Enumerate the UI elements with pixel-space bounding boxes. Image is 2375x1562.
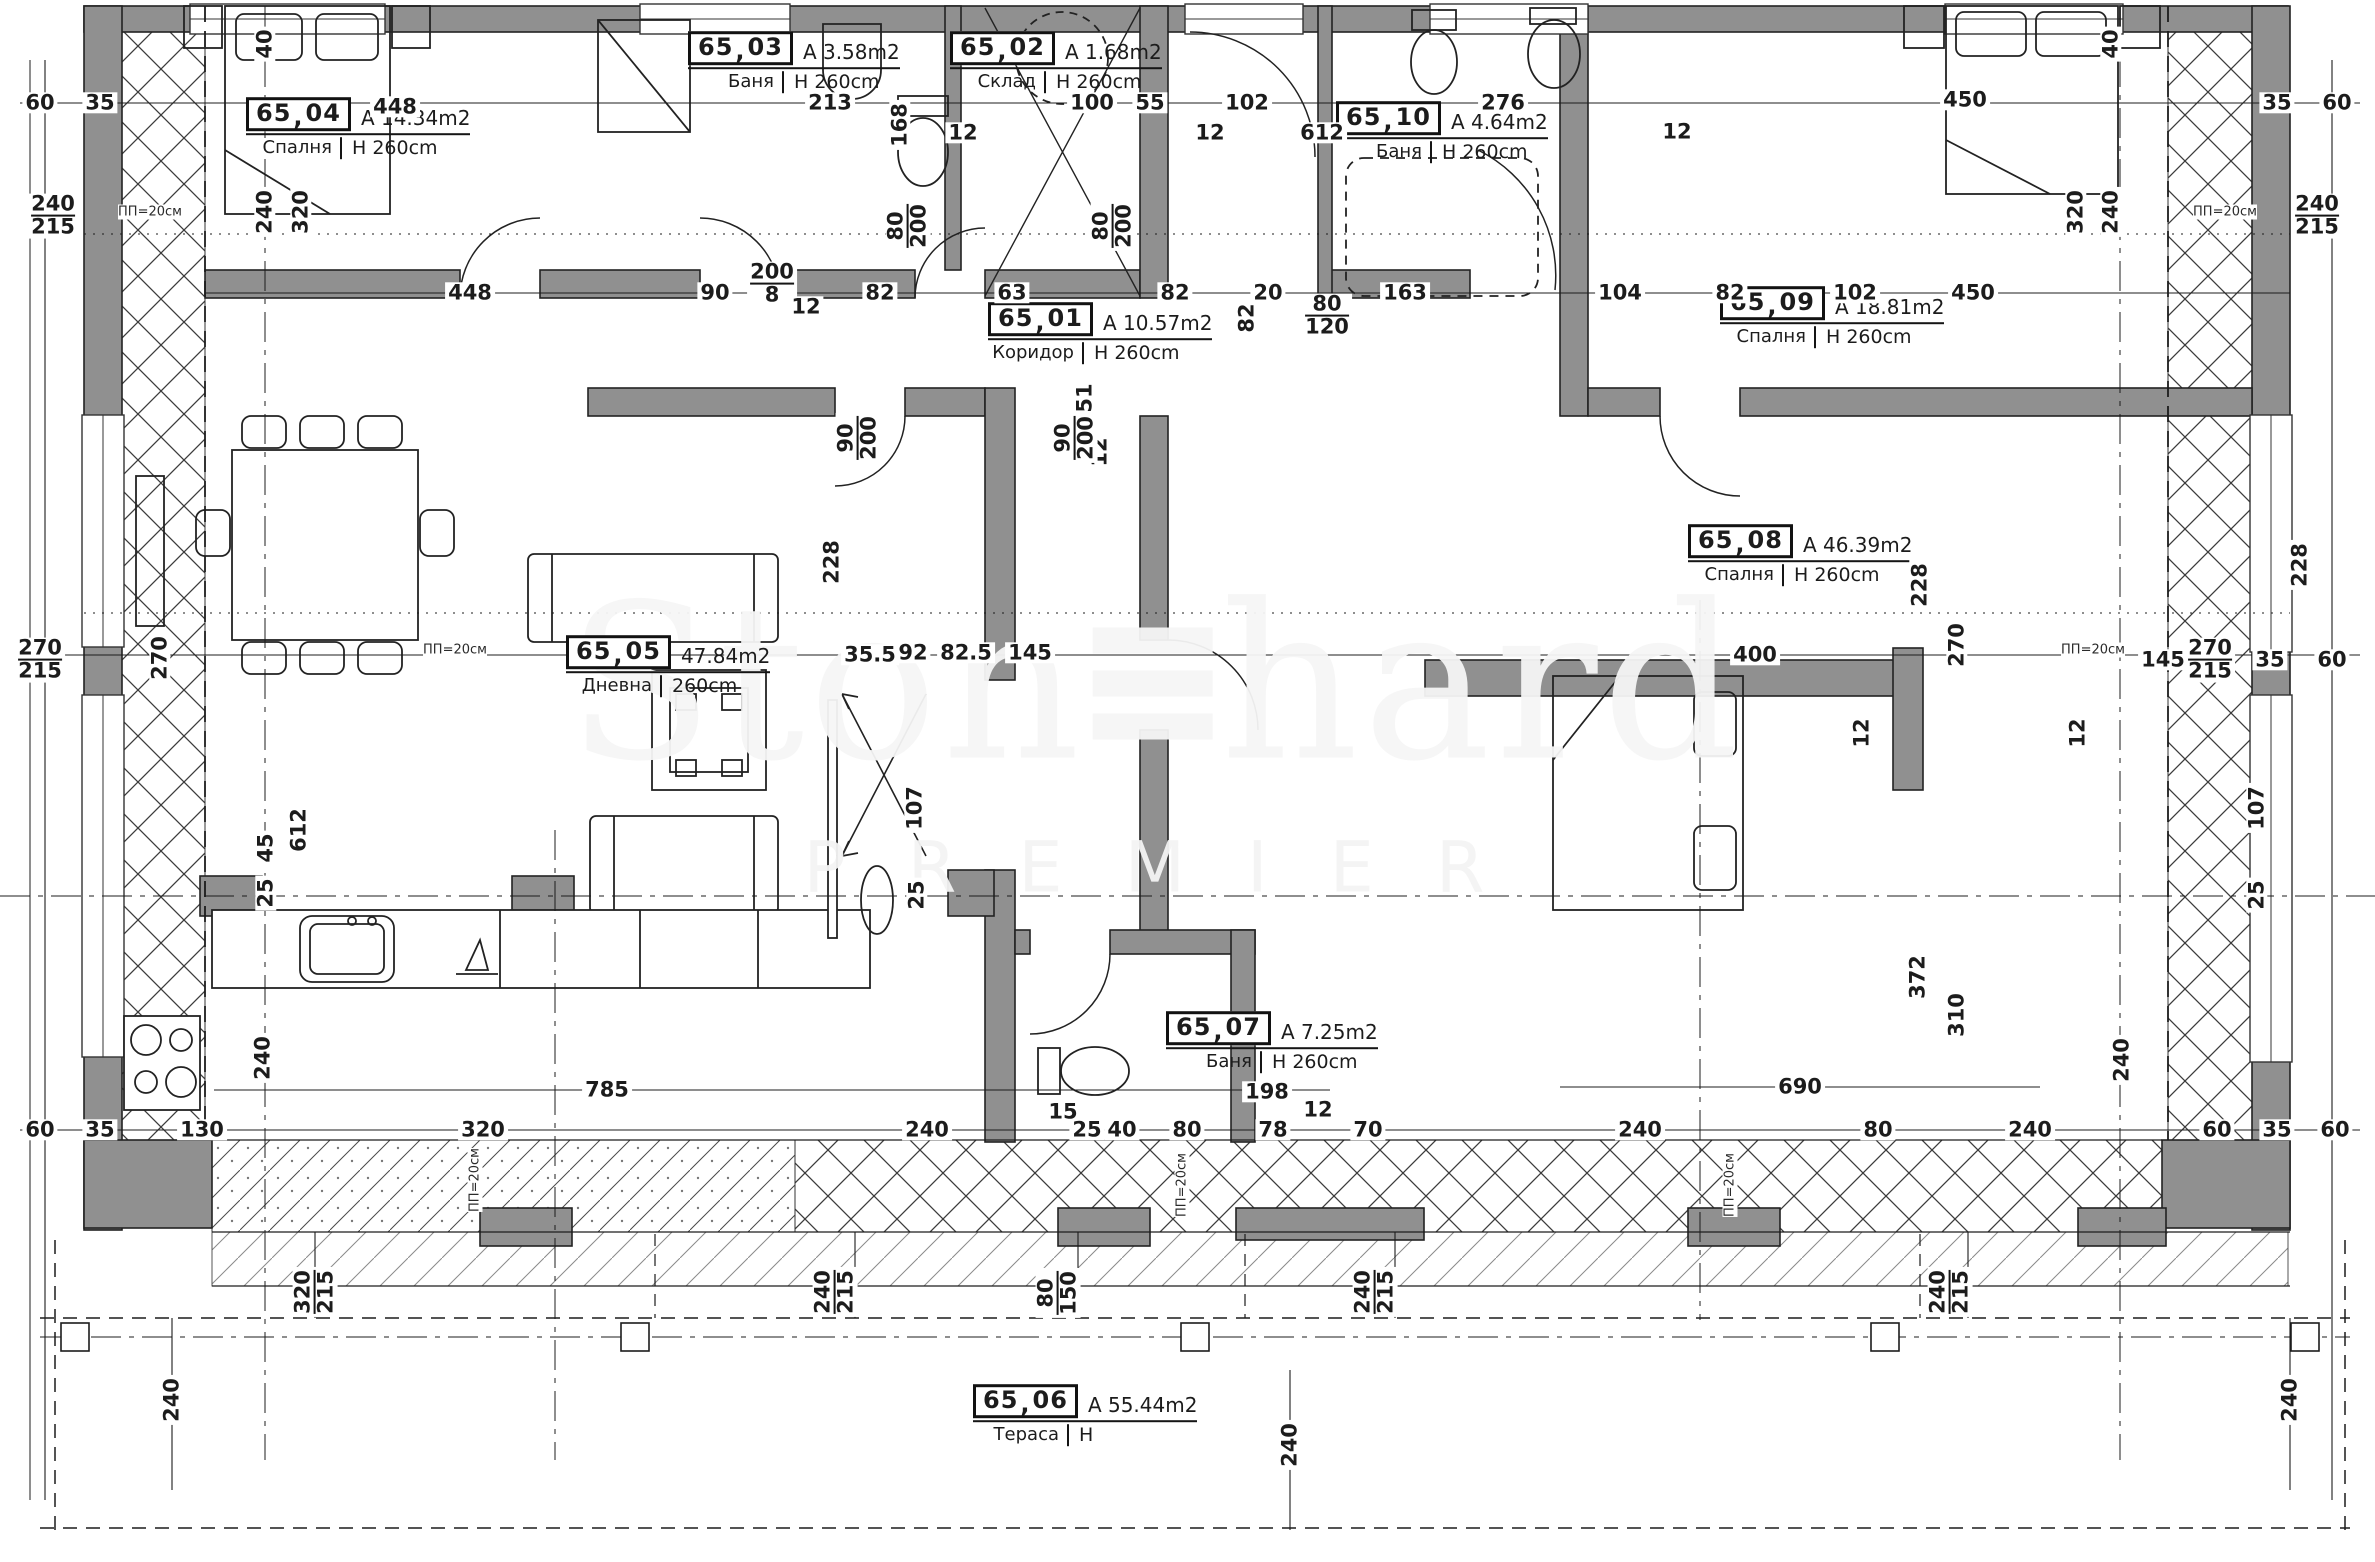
bathtub-65-03 bbox=[823, 24, 881, 99]
toilet-65-03 bbox=[898, 96, 948, 186]
double-door-symbol bbox=[842, 694, 926, 856]
storage-cross bbox=[985, 8, 1140, 296]
toilet-65-07 bbox=[1038, 1047, 1129, 1095]
windows bbox=[82, 4, 2292, 1062]
walls bbox=[84, 6, 2290, 1246]
hatch-bands bbox=[122, 32, 2288, 1286]
sofa-large bbox=[528, 554, 778, 642]
floor-plan: Ston hard PREMIER 65,04A 14.34m2СпалняH … bbox=[0, 0, 2375, 1562]
bed-65-04 bbox=[184, 6, 430, 214]
bed-65-08 bbox=[1553, 676, 1743, 910]
shower-65-03 bbox=[598, 20, 690, 132]
kitchen-counter bbox=[212, 910, 870, 988]
axis-lines bbox=[0, 6, 2375, 1530]
sofa-small bbox=[590, 816, 778, 914]
stove bbox=[124, 1016, 200, 1110]
floor-plan-drawing bbox=[0, 0, 2375, 1562]
dining-table bbox=[196, 416, 454, 674]
door-leaf bbox=[828, 700, 837, 938]
coffee-table bbox=[652, 670, 766, 790]
door-arcs bbox=[460, 32, 1740, 1034]
hall-fixture bbox=[861, 866, 893, 934]
